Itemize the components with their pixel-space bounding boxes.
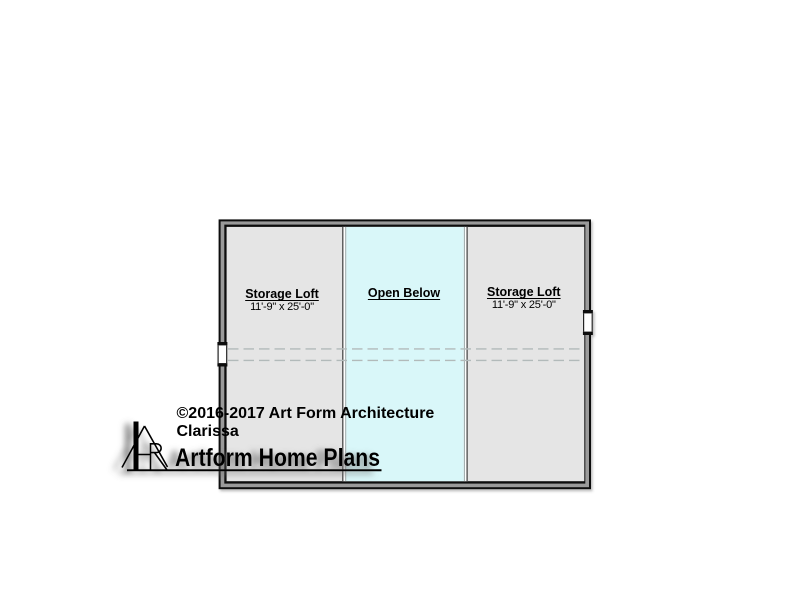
svg-text:Artform Home Plans: Artform Home Plans [175, 444, 380, 472]
